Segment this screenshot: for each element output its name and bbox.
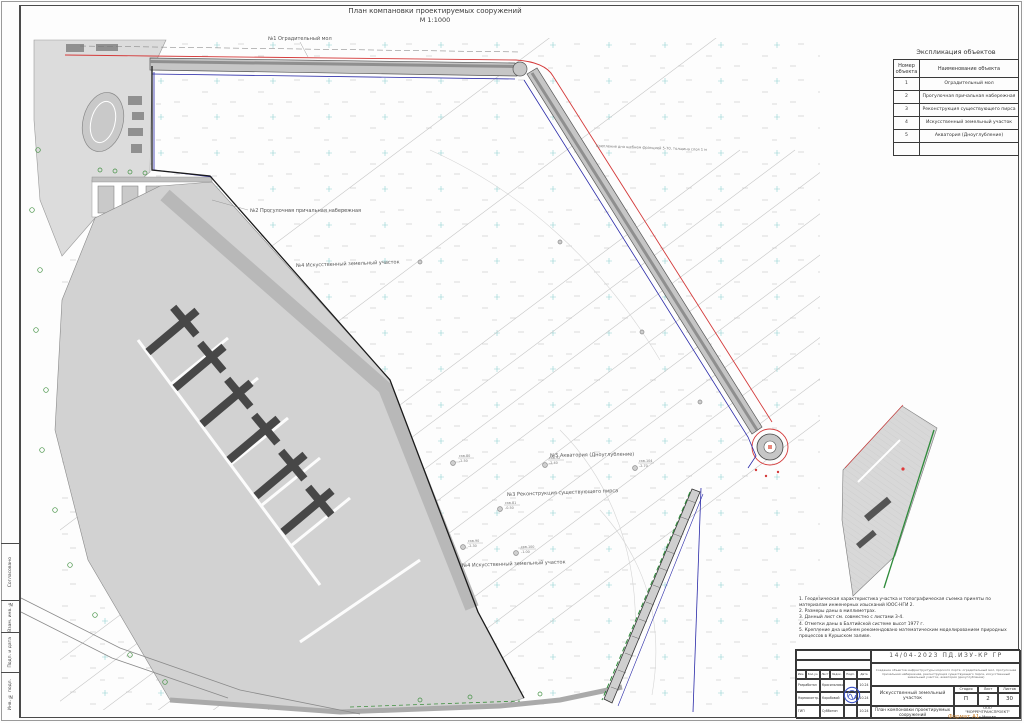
object-name-cell: Искусственный земельный участок bbox=[871, 686, 954, 706]
sig-name: Коробовой bbox=[820, 692, 844, 705]
object-name: Прогулочная причальная набережная bbox=[920, 91, 1019, 104]
sig-signature bbox=[844, 705, 857, 719]
strip-label: Подп. и дата bbox=[8, 637, 13, 668]
object-name: Искусственный земельный участок bbox=[920, 117, 1019, 130]
col-data: Дата bbox=[857, 670, 871, 679]
note-line: 5. Крепление дна щебнем рекомендовано ма… bbox=[799, 628, 1019, 640]
col-podp: Подп. bbox=[844, 670, 857, 679]
strip-label: Инв. № подл. bbox=[8, 679, 13, 710]
title-block: 14/04-2023 ПД.ИЗУ-КР ГР Создание объекто… bbox=[795, 649, 1020, 718]
borehole-label: скв.90 bbox=[468, 539, 479, 543]
strip-label: Взам. инв. № bbox=[8, 601, 13, 632]
sig-role: Разработал bbox=[796, 679, 820, 692]
table-row: 2 Прогулочная причальная набережная bbox=[894, 91, 1019, 104]
col-koluch: Кол.уч. bbox=[806, 670, 820, 679]
table-row: 3 Реконструкция существующего пирса bbox=[894, 104, 1019, 117]
note-line: 1. Геодезическая характеристика участка … bbox=[799, 597, 1019, 609]
object-number: 4 bbox=[894, 117, 920, 130]
svg-text:-0.50: -0.50 bbox=[505, 506, 514, 510]
borehole-label: скв.100 bbox=[521, 545, 534, 549]
object-number: 5 bbox=[894, 130, 920, 143]
drawing-name-cell: План компоновки проектируемых сооружений bbox=[871, 706, 954, 719]
object-number: 3 bbox=[894, 104, 920, 117]
table-row: 1 Оградительный мол bbox=[894, 78, 1019, 91]
sig-role: Нормоконтр. bbox=[796, 692, 820, 705]
borehole-label: скв.80 bbox=[459, 454, 470, 458]
explication-col-number: Номер объекта bbox=[894, 60, 920, 78]
object-number: 1 bbox=[894, 78, 920, 91]
stamp-seal bbox=[843, 686, 861, 704]
sheets-label: Листов bbox=[998, 686, 1021, 693]
left-gost-strip: Согласовано Взам. инв. № Подп. и дата Ин… bbox=[1, 5, 20, 718]
borehole-label: скв.104 bbox=[639, 459, 652, 463]
notes-block: 1. Геодезическая характеристика участка … bbox=[799, 597, 1019, 640]
stage-label: Стадия bbox=[954, 686, 978, 693]
sheet-label: Лист bbox=[978, 686, 998, 693]
strip-empty-cell bbox=[1, 5, 19, 543]
explication-table: Экспликация объектов Номер объекта Наиме… bbox=[893, 48, 1019, 156]
object-name bbox=[920, 143, 1019, 156]
stage-value: П bbox=[954, 693, 978, 706]
sheet-number: 2 bbox=[978, 693, 998, 706]
col-dok: №док. bbox=[830, 670, 844, 679]
strip-cell-agreed: Согласовано bbox=[1, 543, 19, 600]
sheet-title-block: План компановки проектируемых сооружений… bbox=[250, 7, 620, 24]
svg-text:-2.30: -2.30 bbox=[468, 544, 477, 548]
sheet-title: План компановки проектируемых сооружений bbox=[250, 7, 620, 16]
borehole-label: скв.81 bbox=[505, 501, 516, 505]
table-row bbox=[894, 143, 1019, 156]
revision-row-empty bbox=[796, 660, 871, 670]
object-number: 2 bbox=[894, 91, 920, 104]
explication-col-name: Наименование объекта bbox=[920, 60, 1019, 78]
sig-name: Красильников bbox=[820, 679, 844, 692]
object-name: Акватория (Дноуглубление) bbox=[920, 130, 1019, 143]
inset-detail-map bbox=[842, 405, 937, 596]
sheet-scale: М 1:1000 bbox=[250, 16, 620, 24]
sheets-total: 30 bbox=[998, 693, 1021, 706]
col-izm: Изм. bbox=[796, 670, 806, 679]
explication-title: Экспликация объектов bbox=[893, 48, 1019, 56]
svg-text:-2.40: -2.40 bbox=[549, 461, 558, 465]
svg-text:-1.00: -1.00 bbox=[521, 550, 530, 554]
label-breakwater: №1 Оградительный мол bbox=[268, 35, 332, 42]
revision-row-empty bbox=[796, 650, 871, 660]
format-label: Формат А1 bbox=[948, 714, 979, 720]
sig-date: 10.24 bbox=[857, 705, 871, 719]
strip-cell-inv: Инв. № подл. bbox=[1, 672, 19, 716]
strip-label: Согласовано bbox=[8, 557, 13, 587]
table-row: 4 Искусственный земельный участок bbox=[894, 117, 1019, 130]
project-description: Создание объектов инфраструктуры морског… bbox=[871, 663, 1021, 686]
sig-name: Субботин bbox=[820, 705, 844, 719]
label-promenade: №2 Прогулочная причальная набережная bbox=[250, 208, 361, 214]
object-number bbox=[894, 143, 920, 156]
svg-text:-2.70: -2.70 bbox=[639, 464, 648, 468]
object-name: Оградительный мол bbox=[920, 78, 1019, 91]
table-row: 5 Акватория (Дноуглубление) bbox=[894, 130, 1019, 143]
strip-cell-podp: Подп. и дата bbox=[1, 632, 19, 672]
drawing-sheet: скв.80 -2.50 скв.92 -2.40 скв.104 -2.70 … bbox=[0, 0, 1024, 723]
svg-text:-2.50: -2.50 bbox=[459, 459, 468, 463]
object-name: Реконструкция существующего пирса bbox=[920, 104, 1019, 117]
col-list: Лист bbox=[820, 670, 830, 679]
sig-role: ГИП bbox=[796, 705, 820, 719]
document-code: 14/04-2023 ПД.ИЗУ-КР ГР bbox=[871, 650, 1021, 663]
company-city: г.Москва bbox=[979, 715, 996, 719]
strip-cell-vzam: Взам. инв. № bbox=[1, 600, 19, 632]
